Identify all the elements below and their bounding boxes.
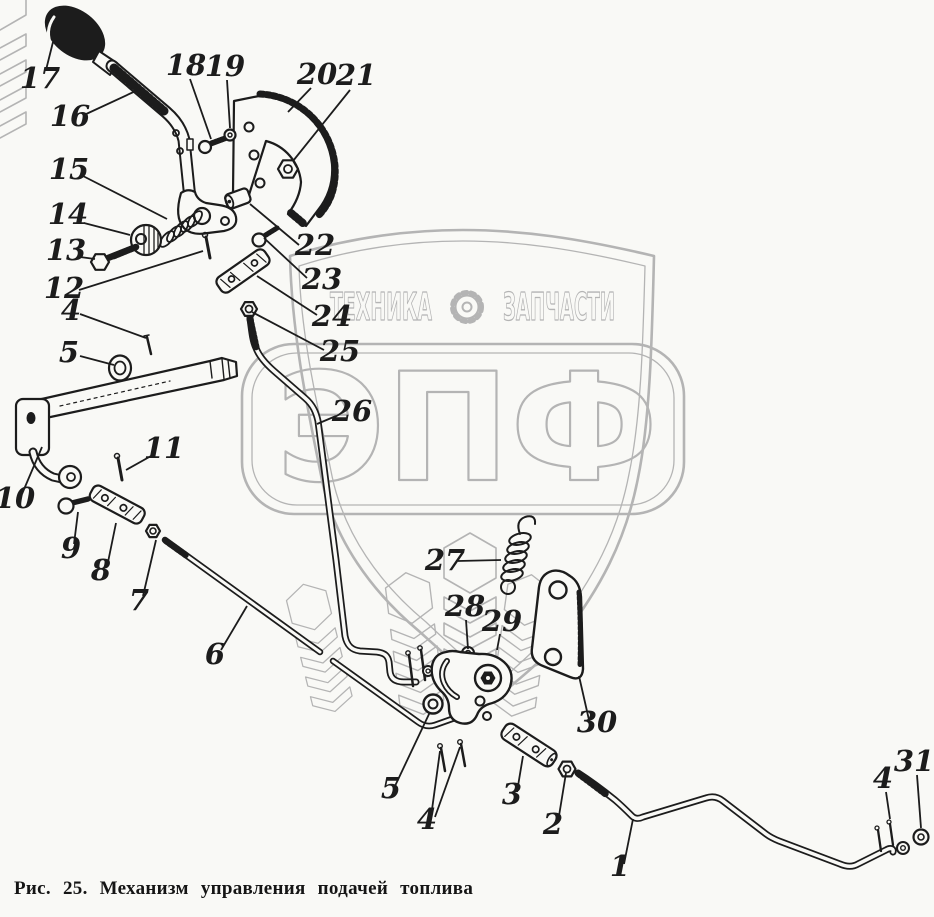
part-label-27: 27 [424,543,465,577]
leader-line-28 [466,620,468,649]
watermark-brand-right: ЗАПЧАСТИ [503,285,615,329]
figure-page: ТЕХНИКА ЗАПЧАСТИ ЭПФ [0,0,934,917]
part-block-24 [214,247,272,295]
part-bushing-22 [224,187,252,209]
part-label-4: 4 [61,293,81,327]
leader-line-15 [83,176,167,219]
part-nut-7 [146,525,160,537]
part-washer-19 [225,130,236,141]
part-label-5: 5 [381,771,401,805]
part-label-8: 8 [90,553,111,587]
part-label-22: 22 [294,228,335,262]
part-label-10: 10 [0,481,35,515]
part-label-9: 9 [61,531,81,565]
part-label-21: 21 [335,58,376,92]
figure-caption: Рис. 25. Механизм управления подачей топ… [14,878,473,900]
gear-icon [453,293,482,322]
part-label-4: 4 [873,761,893,795]
part-label-19: 19 [205,49,245,83]
part-label-1: 1 [610,849,630,883]
watermark-logo: ЭПФ [276,342,658,516]
part-bolt-23 [253,228,278,247]
leader-line-16 [84,89,140,115]
part-label-25: 25 [319,334,360,368]
part-label-20: 20 [296,57,337,91]
leader-line-4 [80,314,146,338]
part-bolt-13 [91,247,136,270]
part-label-17: 17 [20,61,60,95]
part-label-13: 13 [46,233,86,267]
part-label-15: 15 [49,152,89,186]
part-pin-12 [203,233,211,259]
part-label-23: 23 [301,262,342,296]
part-label-5: 5 [59,335,79,369]
part-cotter-pin-11 [115,454,123,481]
part-label-18: 18 [166,48,206,82]
leader-line-5 [80,356,114,365]
part-nut-21 [278,160,298,177]
part-nut-2 [559,762,576,777]
leader-line-31 [917,775,921,828]
diagram-svg: ТЕХНИКА ЗАПЧАСТИ ЭПФ [0,0,934,917]
part-ring-5-upper [109,356,131,381]
part-label-7: 7 [129,583,149,617]
part-label-11: 11 [144,431,184,465]
leader-line-18 [190,79,211,139]
part-washer-31 [914,830,929,845]
leader-line-19 [227,80,230,128]
part-label-4: 4 [417,802,437,836]
part-label-14: 14 [48,197,88,231]
part-bolt-18 [199,138,226,153]
leader-line-14 [84,223,130,235]
part-washer-5-lower [424,695,443,714]
part-pins-4-lower [438,740,465,771]
part-spring-27 [500,516,535,594]
leader-line-4 [886,792,890,819]
part-cam-plate-29 [432,651,512,724]
part-label-31: 31 [894,744,934,778]
part-label-30: 30 [577,705,617,739]
part-arm-assembly [16,356,237,489]
part-label-2: 2 [542,807,563,841]
part-lever-16 [112,66,236,234]
part-pin-9 [59,499,89,514]
part-label-24: 24 [311,299,352,333]
part-label-3: 3 [502,777,522,811]
part-block-8 [88,483,147,525]
part-label-29: 29 [481,604,522,638]
part-block-3 [499,721,559,769]
part-label-28: 28 [444,589,485,623]
part-bracket-30 [532,571,583,679]
part-washer-right [897,842,909,854]
part-label-6: 6 [205,637,225,671]
part-label-26: 26 [331,394,372,428]
part-label-16: 16 [50,99,90,133]
